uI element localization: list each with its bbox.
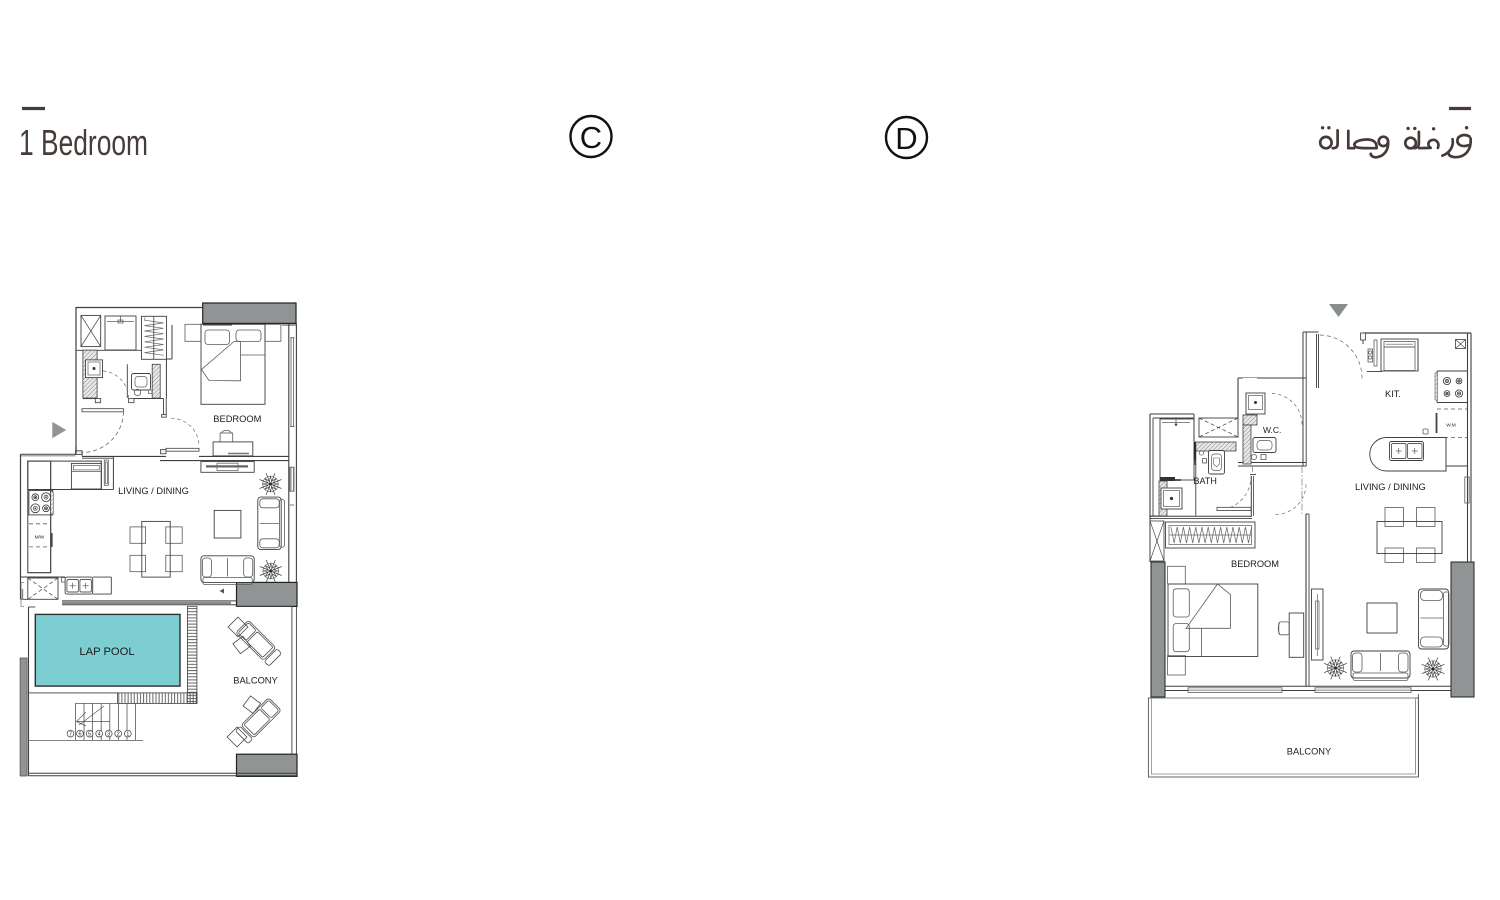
svg-text:D: D (895, 121, 917, 156)
svg-text:4: 4 (98, 732, 101, 738)
svg-text:3: 3 (107, 732, 110, 738)
svg-text:LIVING / DINING: LIVING / DINING (118, 486, 189, 496)
svg-text:BEDROOM: BEDROOM (1231, 559, 1279, 569)
svg-text:LAP POOL: LAP POOL (79, 646, 134, 658)
svg-text:BATH: BATH (1194, 476, 1217, 486)
svg-text:LIVING / DINING: LIVING / DINING (1355, 482, 1426, 492)
svg-text:BEDROOM: BEDROOM (213, 414, 261, 424)
svg-text:5: 5 (88, 732, 91, 738)
svg-text:C: C (580, 120, 602, 155)
svg-text:KIT.: KIT. (1385, 389, 1401, 399)
svg-text:BALCONY: BALCONY (1287, 747, 1331, 757)
svg-text:1 Bedroom: 1 Bedroom (19, 122, 148, 163)
svg-text:W.C.: W.C. (1263, 425, 1281, 435)
svg-text:2: 2 (117, 732, 120, 738)
svg-text:7: 7 (69, 732, 72, 738)
svg-text:W.M: W.M (1446, 423, 1456, 429)
svg-text:1: 1 (126, 732, 129, 738)
svg-text:M/W: M/W (35, 535, 45, 541)
svg-text:6: 6 (78, 732, 81, 738)
svg-text:BALCONY: BALCONY (233, 676, 277, 686)
